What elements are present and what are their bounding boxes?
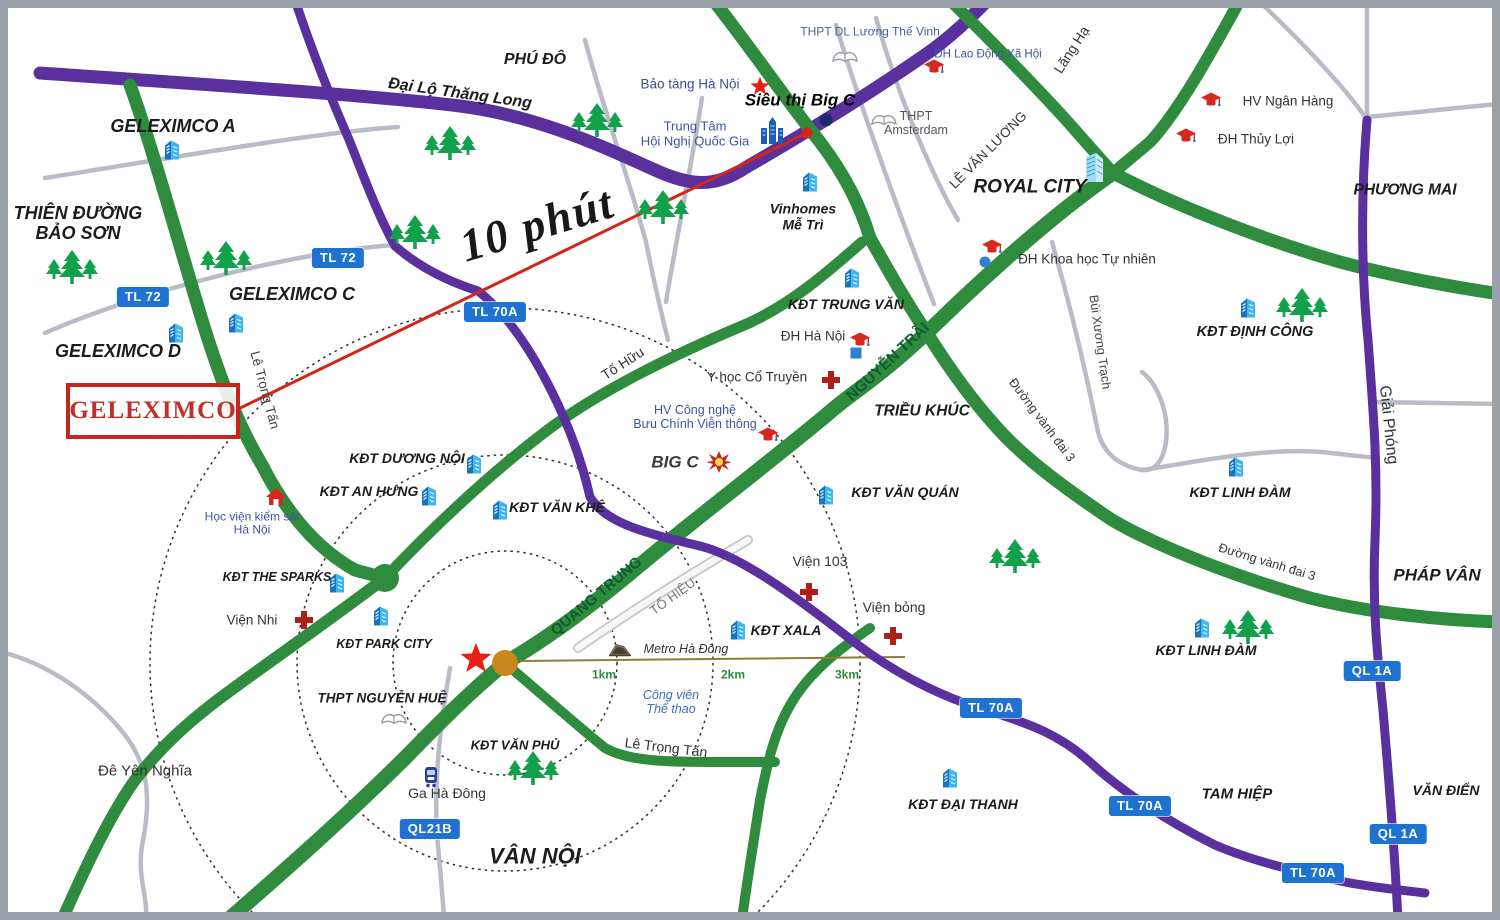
map-label: ROYAL CITY bbox=[973, 176, 1086, 197]
map-label: 3km bbox=[835, 668, 859, 681]
star-icon bbox=[459, 642, 493, 674]
map-label: Viện Nhi bbox=[227, 612, 278, 627]
map-label: KĐT LINH ĐÀM bbox=[1155, 643, 1256, 659]
map-label: KĐT ĐỊNH CÔNG bbox=[1197, 324, 1314, 340]
map-label: Trung Tâm Hội Nghị Quốc Gia bbox=[641, 119, 749, 148]
road-badge: QL21B bbox=[400, 819, 460, 839]
trees-icon bbox=[388, 214, 442, 250]
map-label: ĐH Khoa học Tự nhiên bbox=[1018, 251, 1156, 266]
map-label: KĐT XALA bbox=[751, 623, 822, 639]
map-label: ĐH Lao Động Xã Hội bbox=[934, 49, 1041, 62]
map-label: Đê Yên Nghĩa bbox=[98, 764, 192, 781]
map-label: THIÊN ĐƯỜNG BẢO SƠN bbox=[14, 203, 143, 243]
trees-icon bbox=[199, 240, 253, 276]
map-label: ĐH Hà Nội bbox=[781, 328, 846, 343]
convention-icon bbox=[759, 116, 786, 146]
map-label: Học viện kiểm sát Hà Nội bbox=[205, 511, 300, 538]
map-label: PHÚ ĐÔ bbox=[504, 51, 566, 69]
map-label: Viện bỏng bbox=[863, 600, 926, 616]
building-icon bbox=[800, 170, 820, 193]
origin-label: GELEXIMCO bbox=[69, 397, 236, 425]
map-label: Vinhomes Mễ Trì bbox=[770, 201, 836, 232]
map-label: BIG C bbox=[651, 452, 698, 471]
road-badge: QL 1A bbox=[1344, 661, 1401, 681]
map-label: VÂN NỘI bbox=[489, 845, 581, 870]
cross-icon bbox=[821, 370, 842, 391]
building-icon bbox=[226, 311, 246, 334]
road-badge: TL 72 bbox=[117, 287, 169, 307]
map-label: Siêu thị Big C bbox=[745, 90, 856, 109]
road-ql1a bbox=[1363, 120, 1398, 920]
road-badge: TL 70A bbox=[960, 698, 1022, 718]
map-label: KĐT ĐẠI THANH bbox=[908, 797, 1018, 813]
trees-icon bbox=[45, 249, 99, 285]
map-label: GELEXIMCO A bbox=[110, 116, 235, 136]
trees-icon bbox=[423, 125, 477, 161]
map-label: 1km bbox=[592, 668, 616, 681]
trees-icon bbox=[506, 750, 560, 786]
map-label: KĐT LINH ĐÀM bbox=[1189, 485, 1290, 501]
cap-icon bbox=[1175, 128, 1197, 145]
road-badge: TL 70A bbox=[1109, 796, 1171, 816]
map-label: GELEXIMCO D bbox=[55, 341, 181, 361]
cross-icon bbox=[294, 610, 315, 631]
map-label: THPT DL Lương Thế Vinh bbox=[800, 25, 940, 38]
trees-icon bbox=[570, 102, 624, 138]
road-badge: TL 70A bbox=[1282, 863, 1344, 883]
trees-icon bbox=[988, 538, 1042, 574]
road-badge: TL 70A bbox=[464, 302, 526, 322]
map-label: GELEXIMCO C bbox=[229, 284, 355, 304]
map-label: KĐT DƯƠNG NỘI bbox=[349, 451, 465, 467]
trees-icon bbox=[1275, 287, 1329, 323]
trees-icon bbox=[1221, 609, 1275, 645]
building-icon bbox=[162, 138, 182, 161]
cap-icon bbox=[757, 427, 779, 444]
blue-dot-icon bbox=[979, 256, 991, 268]
gold-icon bbox=[491, 649, 519, 677]
building-icon bbox=[464, 452, 484, 475]
building-icon bbox=[728, 618, 748, 641]
cap-icon bbox=[981, 239, 1003, 256]
origin-box: GELEXIMCO bbox=[66, 383, 240, 439]
map-label: THPT NGUYỄN HUỆ bbox=[317, 690, 446, 705]
house-icon bbox=[265, 487, 287, 507]
route-endpoint bbox=[802, 128, 813, 139]
map-label: VĂN ĐIỂN bbox=[1413, 783, 1480, 799]
map-label: TRIỀU KHÚC bbox=[874, 402, 970, 419]
map-label: KĐT VĂN QUÁN bbox=[851, 485, 958, 501]
building-icon bbox=[490, 498, 510, 521]
map-label: Ga Hà Đông bbox=[408, 786, 486, 802]
road-lang-ha bbox=[950, 0, 1113, 173]
trees-icon bbox=[636, 189, 690, 225]
map-label: KĐT VĂN PHỦ bbox=[471, 739, 560, 754]
map-label: KĐT VĂN KHÊ bbox=[509, 500, 605, 516]
map-label: PHƯƠNG MAI bbox=[1353, 181, 1456, 198]
bigc-icon bbox=[706, 451, 732, 473]
building-icon bbox=[1226, 455, 1246, 478]
building-icon bbox=[940, 766, 960, 789]
map-label: HV Ngân Hàng bbox=[1243, 93, 1334, 108]
map-label: TAM HIỆP bbox=[1202, 787, 1273, 804]
map-label: HV Công nghệ Bưu Chính Viễn thông bbox=[633, 403, 757, 431]
map-label: Bảo tàng Hà Nội bbox=[640, 76, 739, 91]
map-label: PHÁP VÂN bbox=[1393, 565, 1480, 584]
cross-icon bbox=[883, 626, 904, 647]
building-icon bbox=[842, 266, 862, 289]
building-icon bbox=[1238, 296, 1258, 319]
building-icon bbox=[419, 484, 439, 507]
metro-icon bbox=[607, 641, 633, 657]
map-label: Metro Hà Đông bbox=[644, 642, 729, 656]
map-label: Công viên Thể thao bbox=[643, 688, 699, 716]
map-canvas[interactable]: 10 phút GELEXIMCO Đại Lộ Thăng LongGELEX… bbox=[0, 0, 1500, 920]
building-icon bbox=[371, 604, 391, 627]
cap-icon bbox=[849, 332, 871, 349]
map-label: Y học Cổ Truyền bbox=[707, 369, 807, 384]
map-label: Viện 103 bbox=[792, 554, 847, 570]
map-label: THPT Amsterdam bbox=[884, 109, 948, 137]
cap-icon bbox=[1200, 92, 1222, 109]
book-icon bbox=[380, 708, 408, 726]
map-label: KĐT TRUNG VĂN bbox=[788, 297, 904, 313]
book-icon bbox=[831, 46, 859, 64]
blue-sq-icon bbox=[851, 348, 862, 359]
cross-icon bbox=[799, 582, 820, 603]
road-badge: QL 1A bbox=[1370, 824, 1427, 844]
navy-dot-icon bbox=[819, 113, 833, 127]
building-icon bbox=[816, 483, 836, 506]
map-label: ĐH Thủy Lợi bbox=[1218, 131, 1294, 146]
map-label: KĐT THE SPARKS bbox=[223, 570, 332, 584]
road-badge: TL 72 bbox=[312, 248, 364, 268]
building-icon bbox=[1192, 616, 1212, 639]
map-label: 2km bbox=[721, 668, 745, 681]
map-label: KĐT PARK CITY bbox=[336, 637, 432, 651]
map-label: KĐT AN HƯNG bbox=[320, 484, 419, 500]
